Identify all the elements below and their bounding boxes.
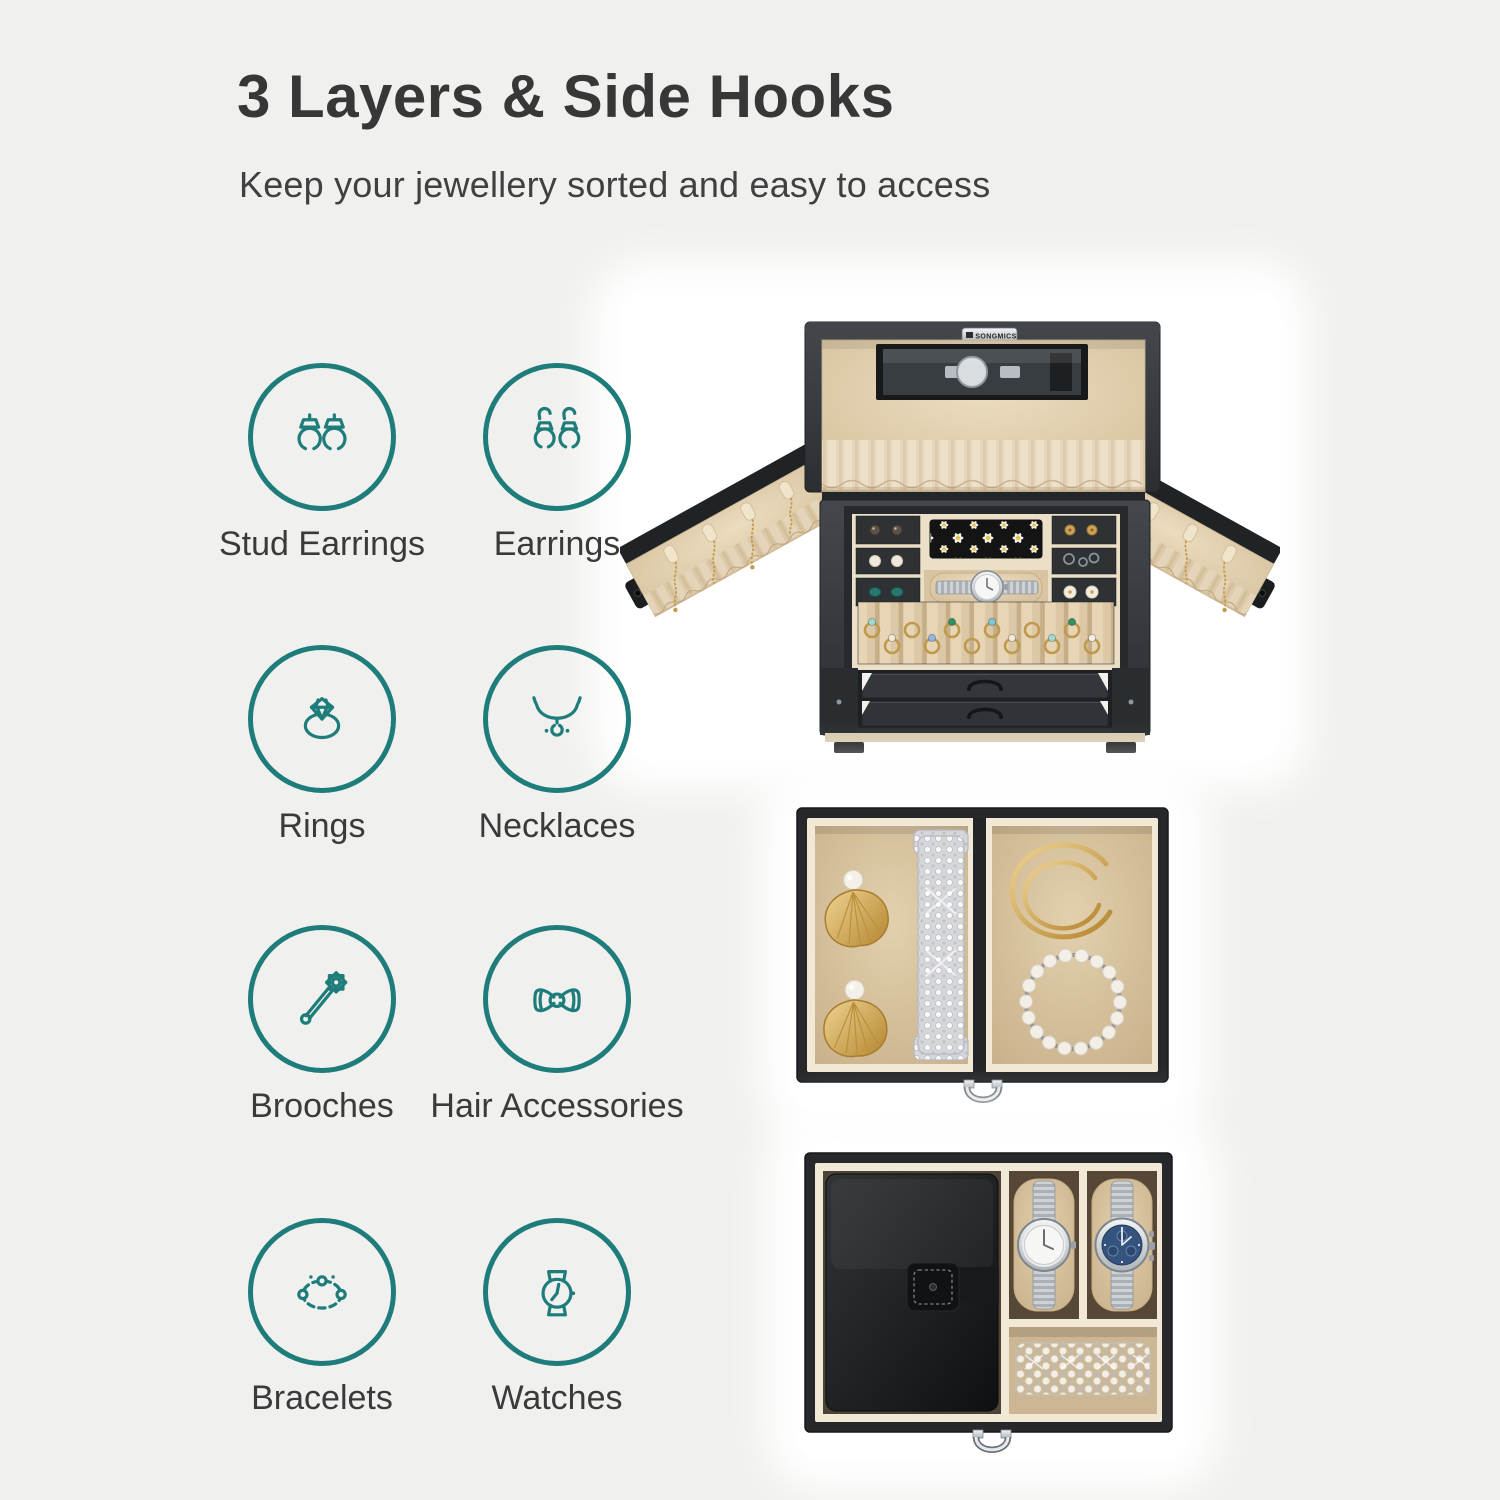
necklaces-icon [483,645,631,793]
ring-rolls-row [858,602,1114,664]
middle-tray-handle [964,1080,1002,1100]
hair-accessories-glyph [520,962,594,1036]
bottom-tray-handle [973,1430,1011,1450]
page: 3 Layers & Side Hooks Keep your jeweller… [0,0,1500,1500]
photo-bottom-tray [795,1145,1190,1460]
bracelet-cell [1009,1327,1157,1414]
hair-accessories-icon [483,925,631,1073]
page-subtitle: Keep your jewellery sorted and easy to a… [239,164,990,206]
center-watch-cell [924,570,1048,606]
middle-tray [797,808,1168,1100]
feature-label-necklaces: Necklaces [392,807,722,846]
earrings-glyph [520,400,594,474]
stud-earring-cells-left [856,516,920,606]
crystal-bracelet [914,830,968,1060]
feature-label-earrings: Earrings [392,525,722,564]
watch-cell-2 [1087,1171,1157,1319]
rings-icon [248,645,396,793]
watch-cell-1 [1009,1171,1079,1319]
drawer-2 [862,701,1108,726]
necklaces-glyph [520,682,594,756]
patterned-pouch [930,520,1042,558]
lid-mirror [876,344,1088,400]
watches-icon [483,1218,631,1366]
stud-earring-cells-right [1052,516,1116,606]
brooches-icon [248,925,396,1073]
photo-middle-tray [790,800,1180,1112]
rings-glyph [285,682,359,756]
drawer-1 [862,673,1108,698]
watches-glyph [520,1255,594,1329]
box-body [820,500,1150,753]
bracelets-icon [248,1218,396,1366]
stud-earrings-glyph [285,400,359,474]
stud-earrings-icon [248,363,396,511]
bracelets-glyph [285,1255,359,1329]
box-lid: SONGMICS [805,322,1160,500]
jewellery-pouch [826,1174,999,1411]
brand-text: SONGMICS [975,334,1016,341]
page-title: 3 Layers & Side Hooks [237,62,894,131]
lid-ruffle [822,440,1145,492]
feature-label-hair-accessories: Hair Accessories [392,1087,722,1126]
brooches-glyph [285,962,359,1036]
bottom-tray [805,1153,1172,1450]
earrings-icon [483,363,631,511]
feature-label-watches: Watches [392,1379,722,1418]
